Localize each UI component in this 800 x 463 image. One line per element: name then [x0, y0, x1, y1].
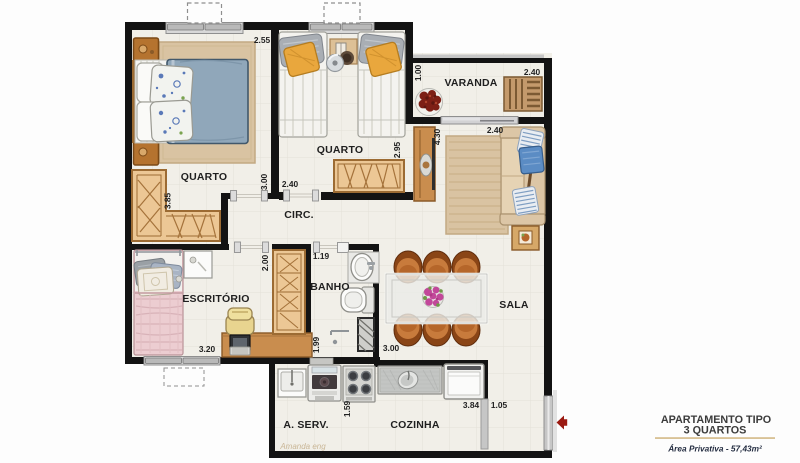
svg-text:Amanda eng: Amanda eng [279, 442, 326, 451]
svg-text:CIRC.: CIRC. [284, 209, 314, 221]
svg-text:2.55: 2.55 [254, 35, 271, 45]
svg-text:1.00: 1.00 [413, 65, 423, 82]
svg-text:1.05: 1.05 [491, 400, 508, 410]
svg-text:VARANDA: VARANDA [444, 77, 497, 89]
svg-text:3.84: 3.84 [463, 400, 480, 410]
svg-text:3.85: 3.85 [163, 193, 173, 210]
svg-text:SALA: SALA [499, 299, 529, 311]
svg-text:3.00: 3.00 [383, 343, 400, 353]
svg-text:2.40: 2.40 [282, 179, 299, 189]
svg-text:1.19: 1.19 [313, 251, 330, 261]
svg-text:Área Privativa - 57,43m²: Área Privativa - 57,43m² [667, 444, 762, 454]
svg-text:QUARTO: QUARTO [317, 144, 364, 156]
svg-text:1.59: 1.59 [342, 401, 352, 418]
svg-text:1.99: 1.99 [311, 337, 321, 354]
svg-text:QUARTO: QUARTO [181, 171, 228, 183]
svg-text:BANHO: BANHO [310, 281, 350, 293]
svg-text:4.30: 4.30 [432, 129, 442, 146]
svg-text:3 QUARTOS: 3 QUARTOS [684, 425, 747, 437]
svg-text:2.40: 2.40 [487, 125, 504, 135]
svg-text:2.40: 2.40 [524, 67, 541, 77]
svg-text:3.20: 3.20 [199, 344, 216, 354]
svg-text:A. SERV.: A. SERV. [283, 419, 328, 431]
svg-text:COZINHA: COZINHA [390, 419, 439, 431]
svg-text:3.00: 3.00 [259, 174, 269, 191]
svg-text:2.95: 2.95 [392, 142, 402, 159]
svg-text:2.00: 2.00 [260, 255, 270, 272]
svg-text:ESCRITÓRIO: ESCRITÓRIO [182, 292, 249, 305]
